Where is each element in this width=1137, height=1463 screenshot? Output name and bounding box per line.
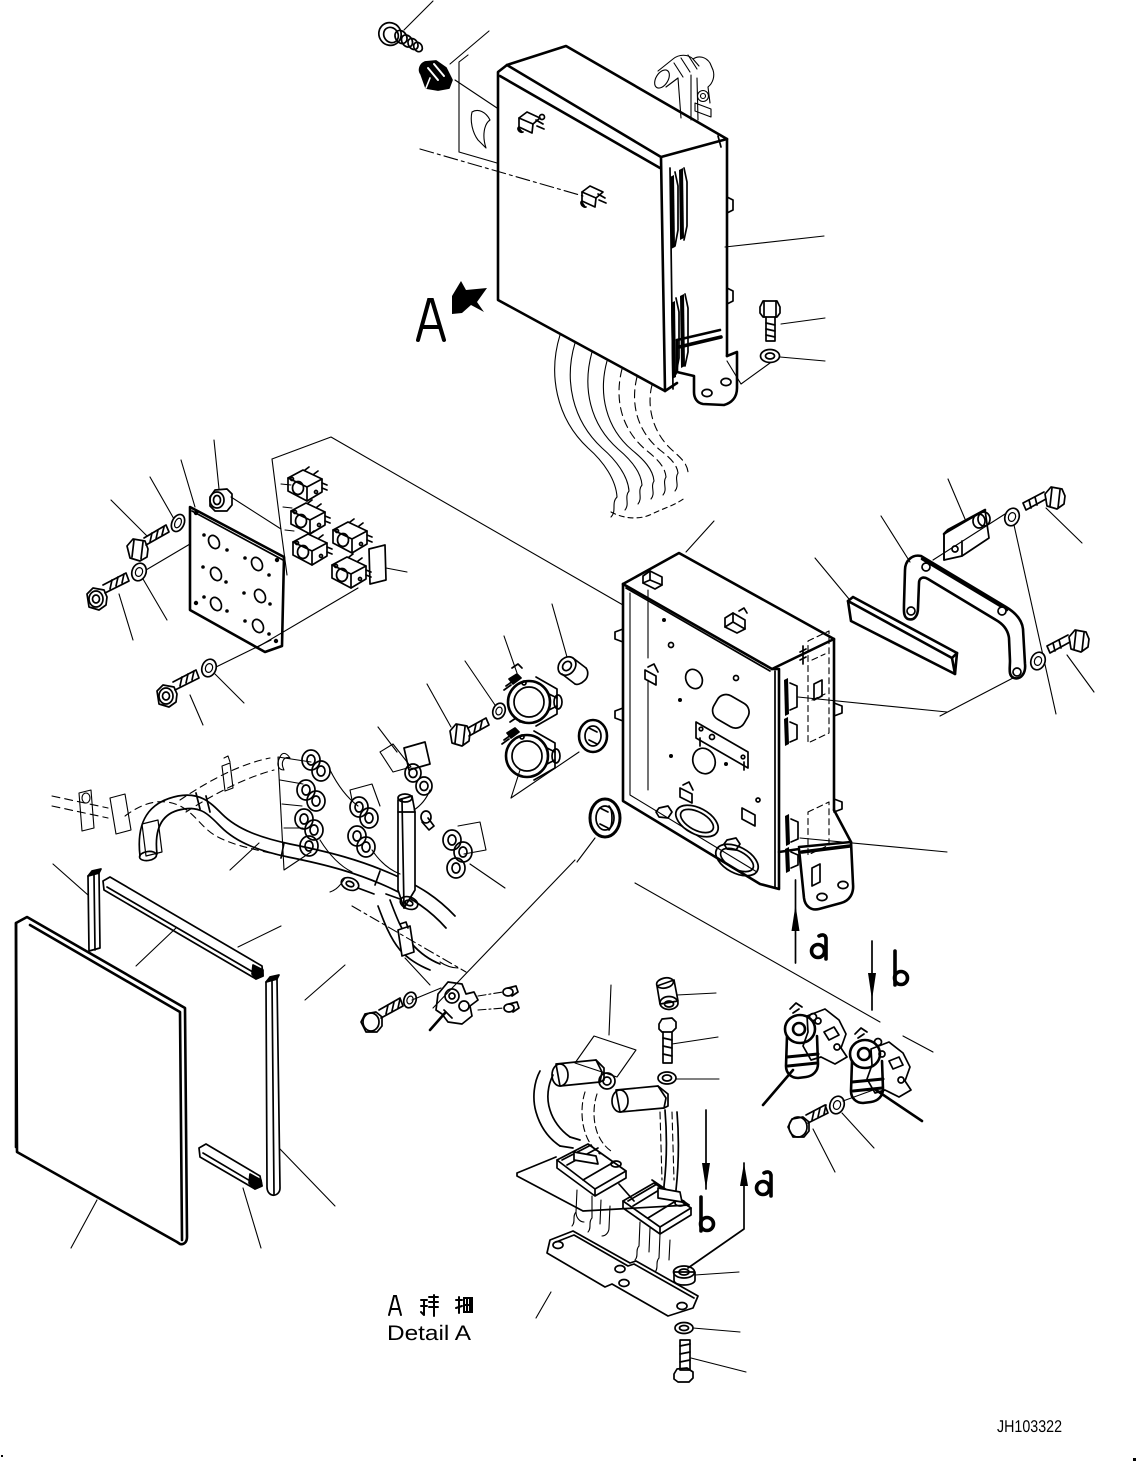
svg-text:JH103322: JH103322 — [997, 1417, 1062, 1436]
svg-text:Detail A: Detail A — [387, 1322, 471, 1345]
